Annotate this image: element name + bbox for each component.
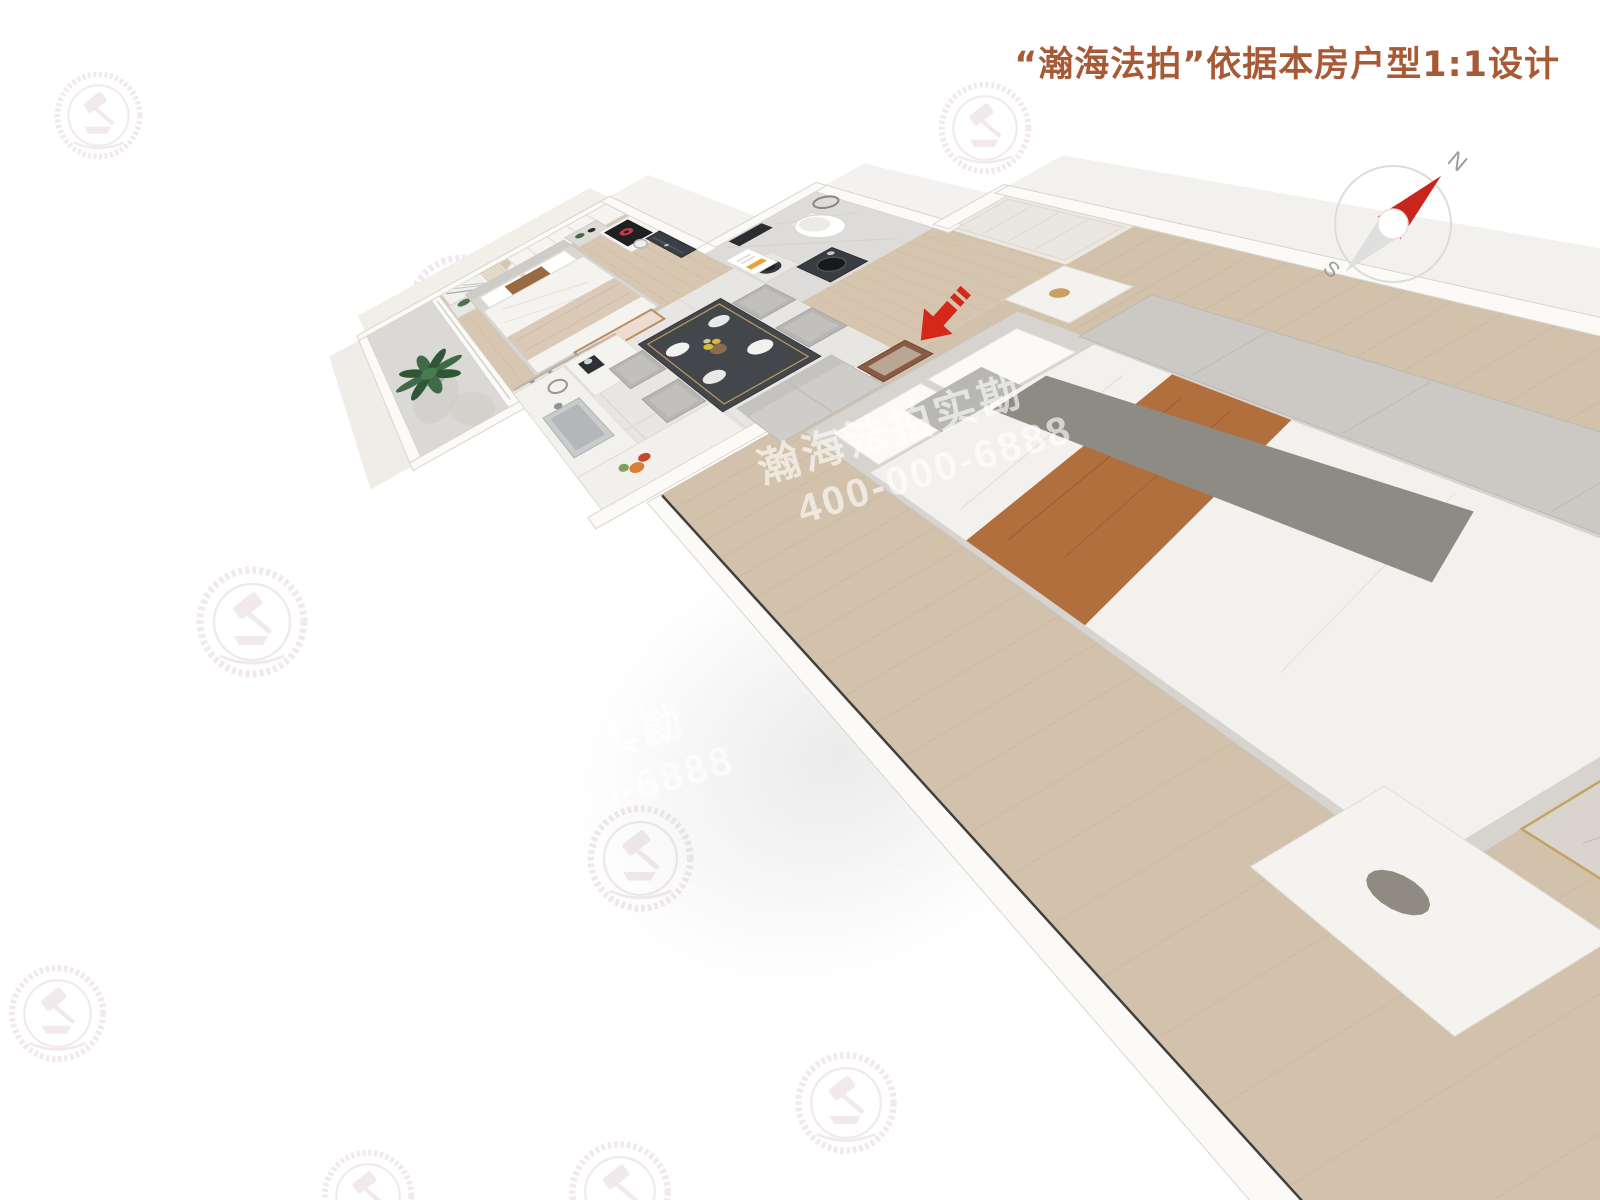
compass: N S <box>1318 140 1468 300</box>
screenshot-root: 瀚海法拍实勘400-000-6888瀚海法拍实勘400-000-6888瀚海法拍… <box>0 0 1600 1200</box>
entrance-arrow-icon <box>890 270 986 366</box>
page-title: “瀚海法拍”依据本房户型1:1设计 <box>960 36 1560 87</box>
